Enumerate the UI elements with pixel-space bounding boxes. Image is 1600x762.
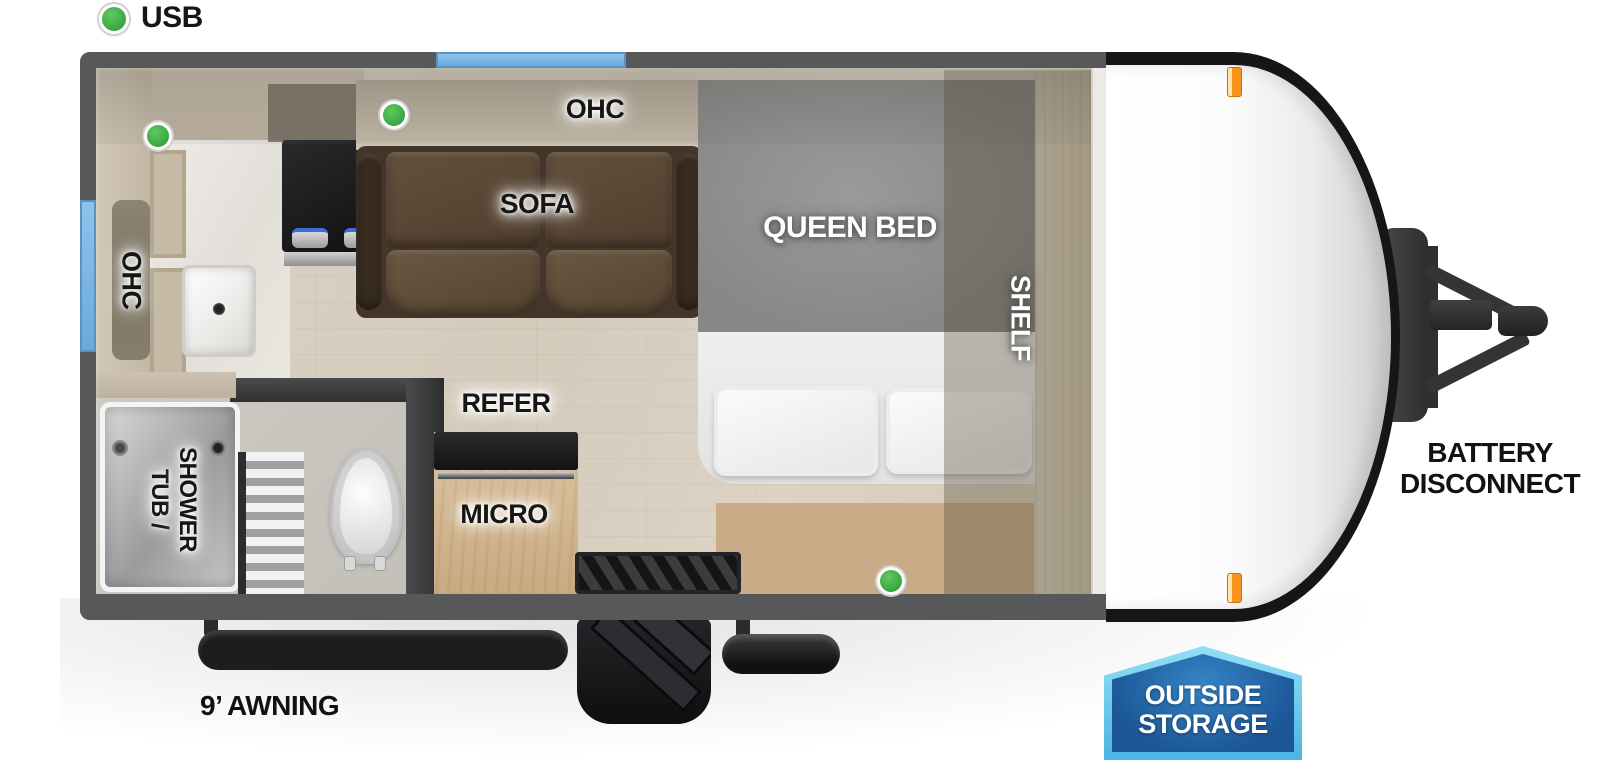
- front-cap: [1106, 52, 1400, 622]
- sofa-label: SOFA: [462, 188, 612, 220]
- entry-step-well: [575, 552, 741, 594]
- tub-shower-label: TUB / SHOWER: [145, 447, 201, 552]
- battery-disconnect-label: BATTERY DISCONNECT: [1382, 437, 1598, 499]
- living-ohc-label: OHC: [540, 94, 650, 125]
- refer-label: REFER: [428, 388, 584, 419]
- toilet-hinge: [344, 556, 356, 571]
- entry-fold-step: [577, 618, 711, 724]
- kitchen-cabinet-door: [150, 268, 186, 378]
- usb-port-icon: [380, 101, 408, 129]
- bed-pillow: [714, 386, 878, 476]
- hitch-coupler-tip: [1498, 306, 1548, 336]
- sofa: [356, 146, 702, 318]
- usb-port-icon: [144, 122, 172, 150]
- tub-shower-label-box: TUB / SHOWER: [130, 418, 216, 580]
- hitch-aframe-bar: [1423, 331, 1531, 395]
- queen-bed-label: QUEEN BED: [738, 211, 962, 245]
- bedroom-shelf-wall: [1035, 68, 1091, 594]
- kitchen-cabinet-door: [150, 150, 186, 258]
- usb-port-icon: [877, 567, 905, 595]
- shower-door: [238, 452, 304, 600]
- awning-label: 9’ AWNING: [200, 690, 339, 722]
- bed-base-wood: [716, 503, 1034, 595]
- counter-end-panel: [96, 372, 236, 398]
- awning-roller: [198, 630, 568, 670]
- micro-label: MICRO: [426, 499, 582, 530]
- usb-legend-icon: [99, 4, 129, 34]
- shelf-label: SHELF: [998, 258, 1042, 378]
- shower-drain-icon: [112, 440, 128, 456]
- sofa-armrest: [356, 154, 382, 310]
- queen-bed-mattress-head: [698, 80, 1038, 332]
- refrigerator-divider: [438, 472, 574, 479]
- awning-roller: [722, 634, 840, 674]
- kitchen-ohc-label: OHC: [116, 251, 147, 310]
- outside-storage-line1: OUTSIDE: [1145, 681, 1262, 710]
- stove-burner: [292, 228, 328, 248]
- hitch-jack: [1430, 300, 1492, 330]
- sink-drain-icon: [213, 303, 225, 315]
- bed-pillow: [886, 388, 1032, 474]
- outside-storage-line2: STORAGE: [1138, 710, 1268, 739]
- rv-floorplan-diagram: USB OHC: [0, 0, 1600, 762]
- window-left: [80, 200, 96, 352]
- kitchen-ohc-cabinet: OHC: [112, 200, 150, 360]
- marker-light-icon: [1227, 67, 1242, 97]
- marker-light-icon: [1227, 573, 1242, 603]
- refrigerator-top: [434, 432, 578, 470]
- toilet-hinge: [374, 556, 386, 571]
- usb-legend-label: USB: [141, 1, 203, 35]
- window-top: [436, 52, 626, 68]
